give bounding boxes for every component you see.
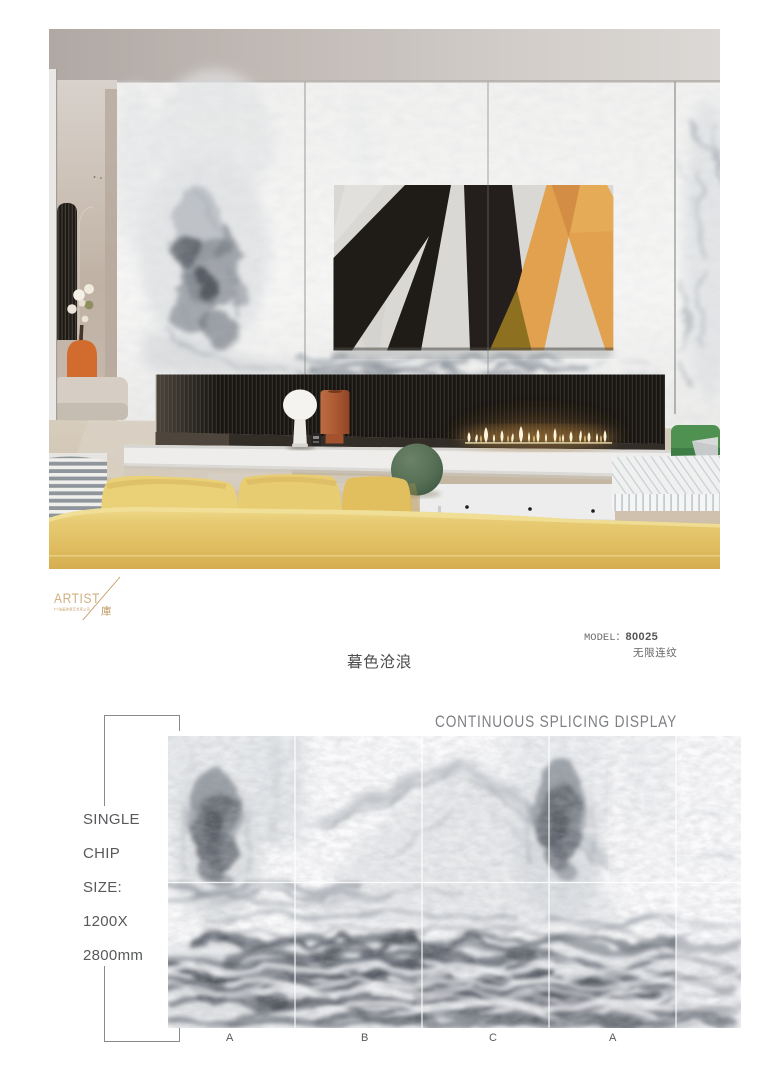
svg-text:庫: 庫 [101,605,112,618]
svg-text:FY油画砖瓷艺术库公司: FY油画砖瓷艺术库公司 [54,607,90,612]
svg-text:ARTIST: ARTIST [54,590,100,606]
